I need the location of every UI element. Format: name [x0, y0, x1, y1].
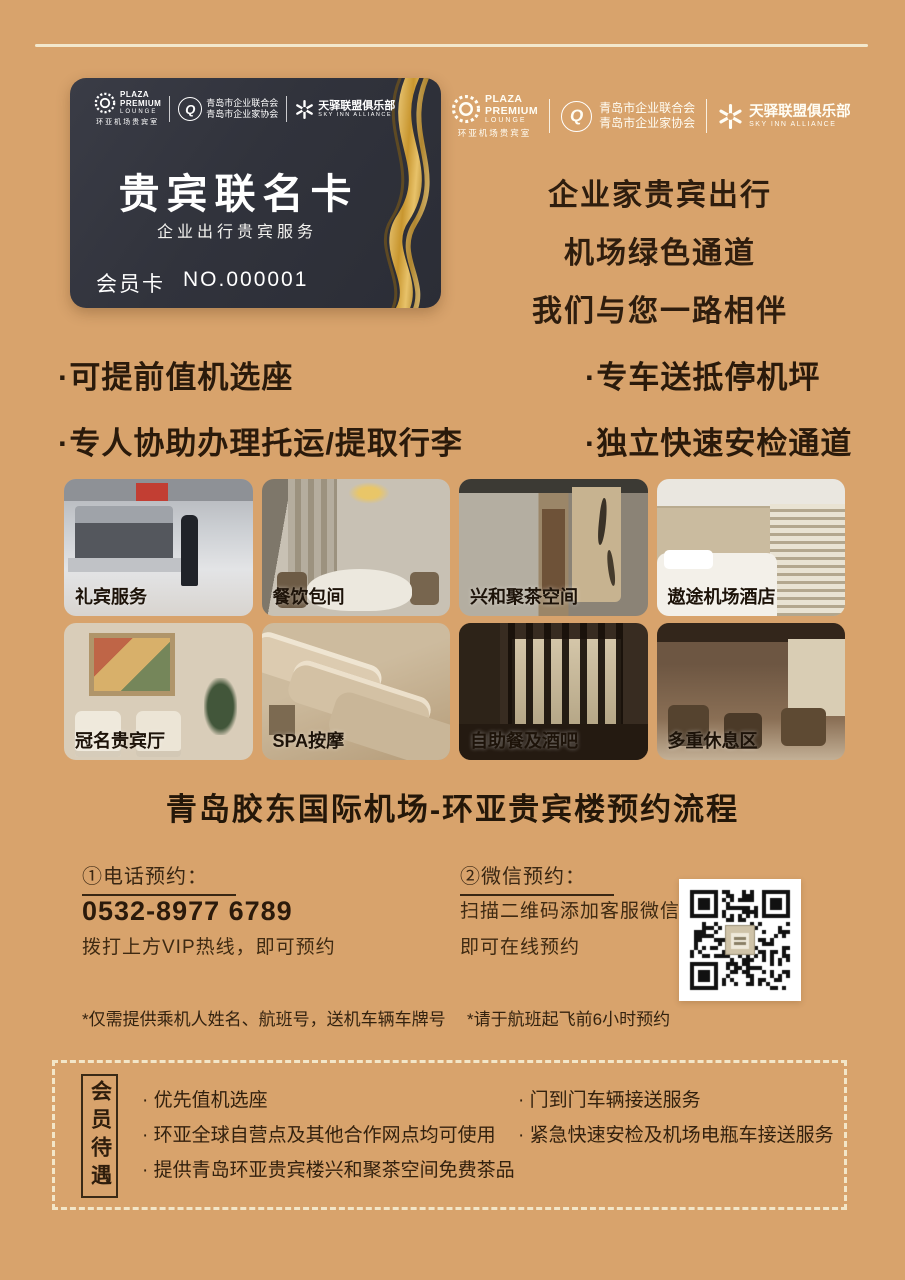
sky-snowflake-icon [718, 104, 743, 129]
wechat-booking-line1: 扫描二维码添加客服微信 [460, 896, 680, 923]
wechat-booking-line2: 即可在线预约 [460, 932, 580, 959]
qingdao-line1: 青岛市企业联合会 [599, 101, 695, 116]
slogan-line: 企业家贵宾出行 [475, 170, 845, 214]
photo-rest-area: 多重休息区 [657, 623, 846, 760]
card-title: 贵宾联名卡 [70, 160, 400, 220]
photo-tea-space: 兴和聚茶空间 [459, 479, 648, 616]
feature-security: ·独立快速安检通道 [585, 418, 852, 463]
logo-separator [286, 96, 287, 122]
photo-caption: 兴和聚茶空间 [470, 583, 578, 609]
vip-membership-card: PLAZA PREMIUM LOUNGE 环亚机场贵宾室 Q 青岛市企业联合会 … [70, 78, 441, 308]
sky-line2: SKY INN ALLIANCE [318, 112, 395, 118]
qingdao-line1: 青岛市企业联合会 [206, 98, 278, 109]
wechat-qr-code [679, 879, 801, 1001]
logo-separator [549, 99, 550, 133]
plaza-line1: PLAZA [485, 94, 538, 106]
sky-snowflake-icon [295, 100, 314, 119]
top-divider-line [35, 44, 868, 47]
photo-caption: 餐饮包间 [273, 583, 345, 609]
plaza-line3: LOUNGE [120, 109, 161, 116]
phone-booking-note: 拨打上方VIP热线，即可预约 [82, 932, 336, 959]
booking-section-title: 青岛胶东国际机场-环亚贵宾楼预约流程 [0, 784, 905, 829]
photo-caption: 遨途机场酒店 [668, 583, 776, 609]
sky-inn-alliance-logo: 天驿联盟俱乐部 SKY INN ALLIANCE [718, 104, 851, 129]
qingdao-association-logo: Q 青岛市企业联合会 青岛市企业家协会 [178, 97, 278, 121]
slogan-line: 我们与您一路相伴 [475, 286, 845, 330]
slogan-line: 机场绿色通道 [475, 228, 845, 272]
benefit-item: · 提供青岛环亚贵宾楼兴和聚茶空间免费茶品 [142, 1153, 515, 1188]
benefit-item: · 紧急快速安检及机场电瓶车接送服务 [518, 1118, 834, 1153]
photo-caption: 自助餐及酒吧 [470, 727, 578, 753]
plaza-premium-logo: PLAZA PREMIUM LOUNGE 环亚机场贵宾室 [451, 94, 538, 139]
photo-airport-hotel: 遨途机场酒店 [657, 479, 846, 616]
photo-buffet-bar: 自助餐及酒吧 [459, 623, 648, 760]
plaza-flower-icon [94, 92, 116, 114]
member-benefits-label: 会员待遇 [81, 1074, 118, 1198]
benefit-item: · 门到门车辆接送服务 [518, 1083, 834, 1118]
qingdao-line2: 青岛市企业家协会 [599, 116, 695, 131]
phone-booking-heading: ①电话预约： [82, 860, 236, 896]
qingdao-q-icon: Q [561, 101, 592, 132]
flyer-page: PLAZA PREMIUM LOUNGE 环亚机场贵宾室 Q 青岛市企业联合会 … [0, 0, 905, 1280]
vip-phone-number: 0532-8977 6789 [82, 896, 293, 927]
plaza-chinese-subtitle: 环亚机场贵宾室 [96, 117, 159, 127]
photo-dining-room: 餐饮包间 [262, 479, 451, 616]
facility-photo-grid: 礼宾服务 餐饮包间 兴和聚茶空间 遨途机场酒店 冠名贵宾厅 SPA按摩 自助餐及… [64, 479, 845, 760]
benefit-item: · 环亚全球自营点及其他合作网点均可使用 [142, 1118, 515, 1153]
header-logo-row: PLAZA PREMIUM LOUNGE 环亚机场贵宾室 Q 青岛市企业联合会 … [451, 94, 851, 139]
plaza-line3: LOUNGE [485, 117, 538, 125]
footnote-advance-booking: *请于航班起飞前6小时预约 [467, 1005, 670, 1030]
plaza-line2: PREMIUM [485, 106, 538, 118]
photo-spa-massage: SPA按摩 [262, 623, 451, 760]
feature-checkin: ·可提前值机选座 [58, 352, 293, 397]
member-label: 会员卡 [96, 268, 165, 298]
logo-separator [706, 99, 707, 133]
logo-separator [169, 96, 170, 122]
qingdao-association-logo: Q 青岛市企业联合会 青岛市企业家协会 [561, 101, 695, 132]
card-logo-row: PLAZA PREMIUM LOUNGE 环亚机场贵宾室 Q 青岛市企业联合会 … [94, 91, 395, 127]
photo-concierge-service: 礼宾服务 [64, 479, 253, 616]
plaza-line2: PREMIUM [120, 100, 161, 109]
photo-caption: 冠名贵宾厅 [75, 727, 165, 753]
feature-luggage: ·专人协助办理托运/提取行李 [58, 418, 463, 463]
member-number: NO.000001 [183, 268, 308, 298]
photo-vip-hall: 冠名贵宾厅 [64, 623, 253, 760]
photo-caption: 礼宾服务 [75, 583, 147, 609]
wechat-booking-heading: ②微信预约： [460, 860, 614, 896]
plaza-chinese-subtitle: 环亚机场贵宾室 [458, 127, 532, 139]
card-subtitle: 企业出行贵宾服务 [70, 218, 400, 242]
sky-line1: 天驿联盟俱乐部 [749, 104, 851, 121]
benefit-item: · 优先值机选座 [142, 1083, 515, 1118]
card-member-number-row: 会员卡 NO.000001 [96, 268, 308, 298]
benefits-list-left: · 优先值机选座 · 环亚全球自营点及其他合作网点均可使用 · 提供青岛环亚贵宾… [142, 1083, 515, 1188]
plaza-premium-logo: PLAZA PREMIUM LOUNGE 环亚机场贵宾室 [94, 91, 161, 127]
photo-caption: SPA按摩 [273, 727, 345, 753]
footnote-passenger-info: *仅需提供乘机人姓名、航班号，送机车辆车牌号 [82, 1005, 446, 1030]
qingdao-q-icon: Q [178, 97, 202, 121]
benefits-list-right: · 门到门车辆接送服务 · 紧急快速安检及机场电瓶车接送服务 [518, 1083, 834, 1153]
qr-code-canvas [679, 879, 801, 1001]
sky-line2: SKY INN ALLIANCE [749, 121, 851, 129]
sky-line1: 天驿联盟俱乐部 [318, 100, 395, 113]
plaza-flower-icon [451, 94, 481, 124]
sky-inn-alliance-logo: 天驿联盟俱乐部 SKY INN ALLIANCE [295, 100, 395, 119]
photo-caption: 多重休息区 [668, 727, 758, 753]
qingdao-line2: 青岛市企业家协会 [206, 109, 278, 120]
slogan-block: 企业家贵宾出行 机场绿色通道 我们与您一路相伴 [475, 170, 845, 344]
feature-apron-car: ·专车送抵停机坪 [585, 352, 820, 397]
